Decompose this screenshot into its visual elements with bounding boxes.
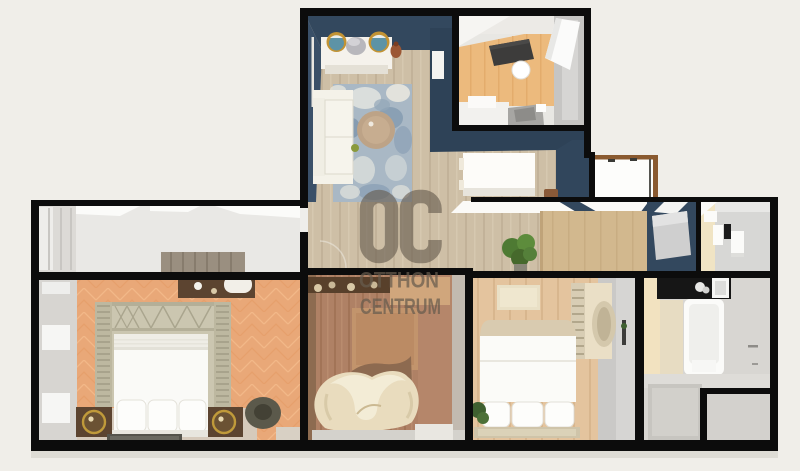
svg-text:CENTRUM: CENTRUM [360, 294, 441, 319]
svg-text:OTTHON: OTTHON [359, 268, 439, 293]
